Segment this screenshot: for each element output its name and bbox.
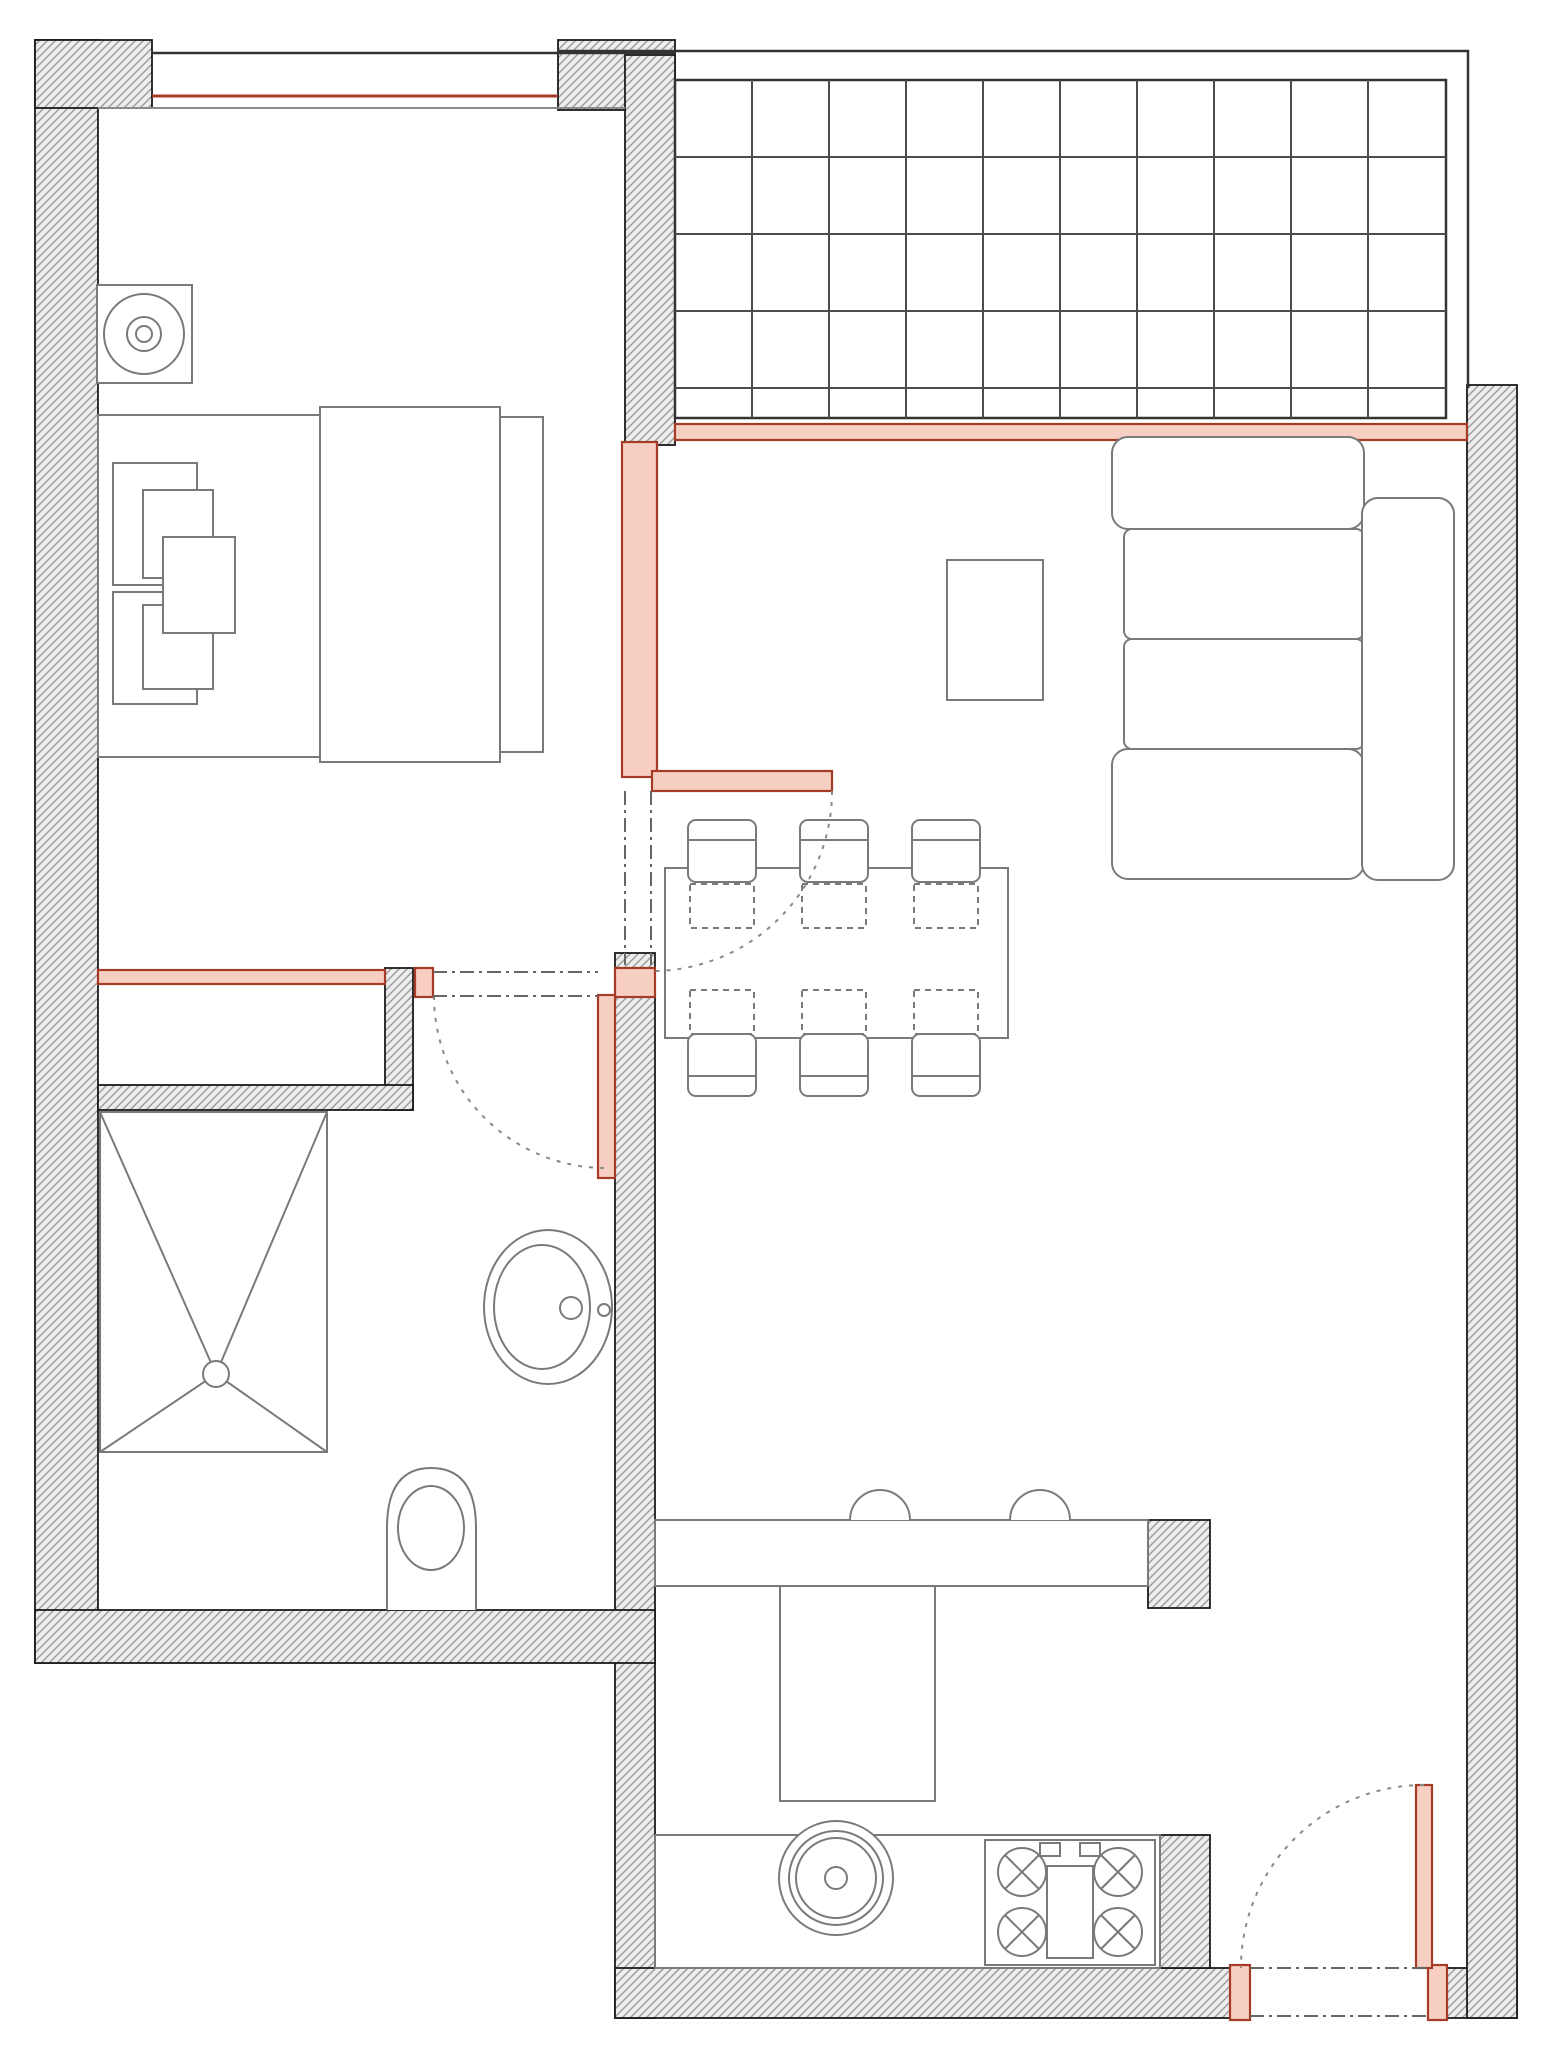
barstool-1	[850, 1490, 910, 1520]
sofa-arm-bottom	[1112, 749, 1364, 879]
wall-closet-bottom	[98, 1085, 413, 1110]
shower-drain	[203, 1361, 229, 1387]
sofa-backrest	[1362, 498, 1454, 880]
sofa-seat-2	[1124, 639, 1364, 749]
lamp-inner-circle	[136, 326, 152, 342]
dining-table	[665, 868, 1008, 1038]
wall-bottom-left-of-entry	[615, 1968, 1230, 2018]
toilet-bowl	[398, 1486, 464, 1570]
pillow-center	[163, 537, 235, 633]
new-wall-bedroom-living	[622, 442, 657, 777]
wall-left	[35, 40, 98, 1663]
bathroom-wall-red-cap	[615, 968, 655, 997]
wall-kitchen-stub-upper	[1148, 1520, 1210, 1608]
kitchen-counter-return	[780, 1586, 935, 1801]
bathroom-door-swing-arc	[434, 996, 606, 1168]
new-wall-bedroom-bottom	[98, 970, 385, 984]
entry-door-jamb-right	[1428, 1965, 1447, 2020]
stove-knob-1	[1040, 1843, 1060, 1856]
stove-center-panel	[1047, 1866, 1093, 1958]
bed-duvet	[320, 407, 500, 762]
bathroom-door-jamb	[415, 968, 433, 997]
chair-top-1	[688, 820, 756, 882]
wall-bedroom-balcony	[625, 55, 675, 445]
bed-blanket-edge	[500, 417, 543, 752]
kitchen-peninsula-counter	[655, 1520, 1148, 1586]
bathroom-door-leaf	[598, 995, 615, 1178]
chair-top-3	[912, 820, 980, 882]
bedroom-door-leaf	[652, 771, 832, 791]
chair-bottom-3	[912, 1034, 980, 1096]
wall-top-left-segment	[35, 40, 152, 108]
stove-knob-2	[1080, 1843, 1100, 1856]
entry-door-jamb-left	[1230, 1965, 1250, 2020]
floor-plan	[0, 0, 1550, 2066]
chair-top-2	[800, 820, 868, 882]
wall-bathroom-bottom	[35, 1610, 655, 1663]
chair-bottom-1	[688, 1034, 756, 1096]
shower-tray	[100, 1112, 327, 1452]
sofa-seat-1	[1124, 529, 1364, 639]
entry-door-leaf	[1416, 1785, 1432, 1968]
sofa-arm-top	[1112, 437, 1364, 529]
washbasin-tap-dot	[598, 1304, 610, 1316]
wall-right	[1467, 385, 1517, 2018]
chair-bottom-2	[800, 1034, 868, 1096]
wall-kitchen-stub-lower	[1160, 1835, 1210, 1968]
balcony-parapet	[558, 51, 1468, 388]
washbasin-faucet	[560, 1297, 582, 1319]
coffee-table	[947, 560, 1043, 700]
wall-bathroom-kitchen	[615, 953, 655, 2018]
kitchen-sink-drain	[825, 1867, 847, 1889]
floor-plan-canvas	[0, 0, 1550, 2066]
entry-door-swing-arc	[1241, 1785, 1424, 1968]
barstool-2	[1010, 1490, 1070, 1520]
